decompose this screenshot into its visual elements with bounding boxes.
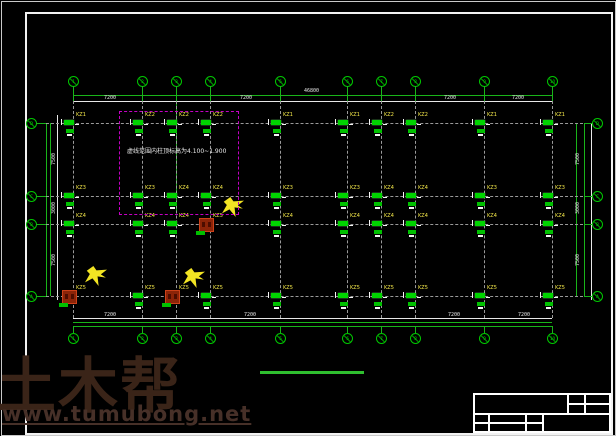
column-tick — [540, 220, 541, 226]
axis-bubble-stem — [381, 86, 382, 101]
column-tick — [349, 197, 353, 198]
column-tick — [540, 292, 541, 298]
column-tick — [335, 292, 336, 298]
column-tick — [61, 220, 62, 226]
column-rebar-mark — [135, 302, 143, 306]
column-label: KZ5 — [179, 286, 189, 291]
note-region-box — [119, 111, 239, 215]
column-rebar-mark — [273, 302, 281, 306]
column-rebar-mark — [477, 302, 485, 306]
column-tick — [130, 220, 131, 226]
dimension-text: 3000 — [576, 202, 581, 214]
watermark-url: www.tumubong.net — [2, 402, 251, 426]
column-sub-label-mark — [375, 307, 380, 309]
column-label: KZ3 — [76, 186, 86, 191]
axis-bubble-stem — [415, 326, 416, 333]
column-rebar-mark — [340, 302, 348, 306]
column-sub-label-mark — [274, 307, 279, 309]
column-label: KZ4 — [555, 214, 565, 219]
grid-line-vertical — [347, 101, 348, 318]
column-tick — [282, 197, 286, 198]
column-label: KZ3 — [487, 186, 497, 191]
axis-bubble-stem — [584, 196, 593, 197]
column-label: KZ4 — [283, 214, 293, 219]
column-sub-label-mark — [341, 134, 346, 136]
column-rebar-mark — [169, 230, 177, 234]
column-sub-label-mark — [546, 235, 551, 237]
column-tick — [268, 192, 269, 198]
column-marker — [271, 293, 281, 298]
column-tick — [369, 119, 370, 125]
column-sub-label-mark — [546, 134, 551, 136]
column-tick — [554, 225, 558, 226]
axis-bubble-stem — [142, 86, 143, 101]
axis-bubble-stem — [176, 86, 177, 101]
column-sub-label-mark — [409, 207, 414, 209]
axis-bubble-stem — [552, 326, 553, 333]
column-marker — [133, 221, 143, 226]
grid-line-horizontal — [36, 296, 593, 297]
column-tick — [417, 197, 421, 198]
bottom-dimension-line — [73, 318, 552, 319]
axis-bubble-stem — [176, 326, 177, 333]
column-rebar-mark — [196, 231, 205, 235]
column-marker — [64, 120, 74, 125]
axis-bubble: 10 — [547, 333, 558, 344]
column-tick — [349, 124, 353, 125]
column-tick — [554, 197, 558, 198]
column-sub-label-mark — [478, 235, 483, 237]
column-rebar-mark — [545, 129, 553, 133]
column-tick — [417, 124, 421, 125]
grid-line-vertical — [415, 101, 416, 318]
column-rebar-mark — [545, 202, 553, 206]
column-tick — [198, 292, 199, 298]
column-tick — [61, 119, 62, 125]
column-marker-red — [199, 218, 214, 232]
axis-bubble-stem — [347, 86, 348, 101]
column-marker — [338, 221, 348, 226]
axis-bubble-stem — [210, 326, 211, 333]
column-marker — [475, 120, 485, 125]
column-rebar-mark — [273, 129, 281, 133]
column-rebar-mark — [408, 302, 416, 306]
axis-bubble-stem — [484, 326, 485, 333]
note-text: 虚线范围内柱顶标高为4.100~1.900 — [127, 148, 226, 155]
column-rebar-mark — [545, 302, 553, 306]
column-marker — [543, 120, 553, 125]
column-rebar-mark — [408, 202, 416, 206]
column-label: KZ1 — [350, 113, 360, 118]
column-sub-label-mark — [274, 207, 279, 209]
column-marker-red — [62, 290, 77, 304]
column-sub-label-mark — [341, 207, 346, 209]
column-tick — [282, 124, 286, 125]
column-rebar-mark — [408, 129, 416, 133]
column-tick — [282, 225, 286, 226]
column-label: KZ1 — [76, 113, 86, 118]
column-label: KZ2 — [418, 113, 428, 118]
dimension-text: 3000 — [52, 202, 57, 214]
left-dimension-line — [57, 115, 58, 300]
title-block-divider — [567, 403, 609, 405]
column-sub-label-mark — [136, 307, 141, 309]
column-sub-label-mark — [375, 207, 380, 209]
column-label: KZ3 — [350, 186, 360, 191]
column-tick — [383, 197, 387, 198]
column-marker — [406, 293, 416, 298]
column-marker — [372, 221, 382, 226]
column-sub-label-mark — [341, 235, 346, 237]
axis-bubble-stem — [347, 326, 348, 333]
column-rebar-mark — [273, 230, 281, 234]
column-label: KZ5 — [555, 286, 565, 291]
column-sub-label-mark — [409, 235, 414, 237]
column-rebar-mark — [66, 230, 74, 234]
axis-bubble: 4 — [205, 333, 216, 344]
column-rebar-mark — [408, 230, 416, 234]
column-tick — [554, 124, 558, 125]
column-marker — [133, 293, 143, 298]
dimension-text: 7200 — [518, 313, 530, 318]
column-label: KZ5 — [487, 286, 497, 291]
top-dimension-line — [73, 101, 552, 102]
column-rebar-mark — [374, 230, 382, 234]
column-tick — [75, 197, 79, 198]
axis-bubble-stem — [484, 86, 485, 101]
column-marker — [475, 193, 485, 198]
grid-line-vertical — [73, 101, 74, 318]
column-marker — [271, 193, 281, 198]
column-tick — [369, 192, 370, 198]
column-tick — [268, 220, 269, 226]
column-marker — [372, 293, 382, 298]
column-tick — [472, 220, 473, 226]
column-label: KZ5 — [145, 286, 155, 291]
column-label: KZ3 — [283, 186, 293, 191]
column-rebar-mark — [162, 303, 171, 307]
column-label: KZ5 — [350, 286, 360, 291]
column-label: KZ4 — [384, 214, 394, 219]
axis-bubble-stem — [210, 86, 211, 101]
column-rebar-mark — [477, 230, 485, 234]
column-marker — [543, 193, 553, 198]
column-tick — [383, 225, 387, 226]
column-tick — [335, 119, 336, 125]
column-marker — [338, 120, 348, 125]
dimension-text: 7500 — [576, 153, 581, 165]
column-sub-label-mark — [204, 307, 209, 309]
column-rebar-mark — [273, 202, 281, 206]
dimension-text: 7200 — [448, 313, 460, 318]
axis-bubble-stem — [280, 86, 281, 101]
column-marker — [64, 193, 74, 198]
column-label: KZ1 — [555, 113, 565, 118]
column-sub-label-mark — [170, 235, 175, 237]
axis-bubble-stem — [584, 123, 593, 124]
axis-bubble: 7 — [376, 333, 387, 344]
column-sub-label-mark — [274, 134, 279, 136]
column-sub-label-mark — [409, 307, 414, 309]
axis-bubble: 9 — [479, 333, 490, 344]
column-marker — [271, 221, 281, 226]
dimension-text: 7200 — [104, 96, 116, 101]
column-rebar-mark — [135, 230, 143, 234]
axis-bubble-stem — [73, 86, 74, 101]
column-rebar-mark — [66, 129, 74, 133]
column-label: KZ5 — [283, 286, 293, 291]
axis-bubble: 6 — [342, 333, 353, 344]
column-tick — [383, 297, 387, 298]
bottom-dimension-line — [73, 322, 552, 323]
dimension-text: 7500 — [52, 153, 57, 165]
column-marker — [201, 293, 211, 298]
column-sub-label-mark — [136, 235, 141, 237]
column-label: KZ1 — [283, 113, 293, 118]
dimension-text: 7200 — [240, 96, 252, 101]
column-tick — [554, 297, 558, 298]
axis-bubble-stem — [36, 224, 46, 225]
column-tick — [164, 220, 165, 226]
column-marker — [64, 221, 74, 226]
column-marker — [475, 293, 485, 298]
column-rebar-mark — [340, 230, 348, 234]
cad-drawing-canvas: 1122334455667788991010DDCCBBAAKZ1KZ2KZ2K… — [0, 0, 616, 436]
column-marker — [167, 221, 177, 226]
right-dimension-line — [584, 123, 585, 296]
left-dimension-line — [46, 123, 47, 296]
title-block — [473, 393, 611, 433]
column-tick — [61, 192, 62, 198]
column-rebar-mark — [545, 230, 553, 234]
bottom-dimension-line — [73, 326, 552, 327]
column-tick — [417, 225, 421, 226]
axis-bubble-stem — [73, 326, 74, 333]
column-marker — [406, 221, 416, 226]
column-rebar-mark — [340, 129, 348, 133]
column-rebar-mark — [374, 302, 382, 306]
column-rebar-mark — [340, 202, 348, 206]
axis-bubble-stem — [36, 123, 46, 124]
axis-bubble-stem — [36, 296, 46, 297]
column-label: KZ4 — [418, 186, 428, 191]
column-tick — [369, 292, 370, 298]
column-sub-label-mark — [67, 134, 72, 136]
column-label: KZ4 — [487, 214, 497, 219]
column-tick — [486, 197, 490, 198]
column-marker — [406, 193, 416, 198]
column-marker — [338, 293, 348, 298]
dimension-text: 7200 — [512, 96, 524, 101]
column-sub-label-mark — [67, 207, 72, 209]
title-block-divider — [475, 422, 543, 424]
column-rebar-mark — [477, 202, 485, 206]
axis-bubble-stem — [36, 196, 46, 197]
grid-line-vertical — [280, 101, 281, 318]
column-tick — [486, 297, 490, 298]
column-sub-label-mark — [409, 134, 414, 136]
grid-line-horizontal — [36, 224, 593, 225]
column-tick — [335, 192, 336, 198]
column-label: KZ5 — [76, 286, 86, 291]
axis-bubble: A — [592, 291, 603, 302]
column-rebar-mark — [59, 303, 68, 307]
column-tick — [268, 292, 269, 298]
column-marker — [406, 120, 416, 125]
column-label: KZ5 — [384, 286, 394, 291]
column-label: KZ4 — [76, 214, 86, 219]
column-label: KZ4 — [418, 214, 428, 219]
top-dimension-line — [73, 95, 552, 96]
column-tick — [212, 297, 216, 298]
column-tick — [349, 297, 353, 298]
column-sub-label-mark — [546, 307, 551, 309]
column-tick — [178, 225, 182, 226]
column-sub-label-mark — [478, 134, 483, 136]
column-sub-label-mark — [478, 307, 483, 309]
column-rebar-mark — [66, 202, 74, 206]
column-sub-label-mark — [375, 235, 380, 237]
column-tick — [282, 297, 286, 298]
column-tick — [417, 297, 421, 298]
axis-bubble: B — [592, 219, 603, 230]
column-tick — [349, 225, 353, 226]
axis-bubble: 5 — [275, 333, 286, 344]
column-marker — [338, 193, 348, 198]
column-rebar-mark — [374, 202, 382, 206]
column-tick — [486, 225, 490, 226]
grid-line-vertical — [484, 101, 485, 318]
column-tick — [472, 192, 473, 198]
column-tick — [540, 192, 541, 198]
column-label: KZ2 — [384, 113, 394, 118]
column-tick — [403, 119, 404, 125]
axis-bubble: 8 — [410, 333, 421, 344]
drawing-title-underline — [260, 371, 364, 374]
column-tick — [383, 124, 387, 125]
column-marker — [372, 193, 382, 198]
axis-bubble: C — [592, 191, 603, 202]
column-tick — [369, 220, 370, 226]
column-tick — [472, 292, 473, 298]
dimension-text: 7500 — [52, 254, 57, 266]
axis-bubble-stem — [552, 86, 553, 101]
dimension-text: 7200 — [244, 313, 256, 318]
axis-bubble-stem — [142, 326, 143, 333]
column-marker — [372, 120, 382, 125]
column-tick — [403, 292, 404, 298]
dimension-text: 7500 — [576, 254, 581, 266]
column-tick — [335, 220, 336, 226]
grid-line-vertical — [552, 101, 553, 318]
column-sub-label-mark — [375, 134, 380, 136]
column-label: KZ1 — [487, 113, 497, 118]
right-dimension-line — [591, 123, 592, 300]
axis-bubble-stem — [584, 224, 593, 225]
column-label: KZ5 — [213, 286, 223, 291]
column-rebar-mark — [477, 129, 485, 133]
column-tick — [130, 292, 131, 298]
axis-bubble-stem — [584, 296, 593, 297]
axis-bubble: D — [592, 118, 603, 129]
column-label: KZ3 — [555, 186, 565, 191]
column-tick — [403, 220, 404, 226]
axis-bubble-stem — [381, 326, 382, 333]
column-sub-label-mark — [341, 307, 346, 309]
dimension-text: 46800 — [304, 89, 319, 94]
column-tick — [472, 119, 473, 125]
column-label: KZ4 — [350, 214, 360, 219]
column-rebar-mark — [374, 129, 382, 133]
column-rebar-mark — [203, 302, 211, 306]
column-marker — [475, 221, 485, 226]
column-sub-label-mark — [478, 207, 483, 209]
dimension-text: 7200 — [104, 313, 116, 318]
column-tick — [75, 124, 79, 125]
grid-line-vertical — [381, 101, 382, 318]
column-marker-red — [165, 290, 180, 304]
column-sub-label-mark — [274, 235, 279, 237]
column-sub-label-mark — [67, 235, 72, 237]
axis-bubble-stem — [415, 86, 416, 101]
column-tick — [403, 192, 404, 198]
column-tick — [144, 225, 148, 226]
column-sub-label-mark — [546, 207, 551, 209]
dimension-text: 7200 — [444, 96, 456, 101]
column-label: KZ5 — [418, 286, 428, 291]
axis-bubble-stem — [280, 326, 281, 333]
column-tick — [268, 119, 269, 125]
column-tick — [486, 124, 490, 125]
column-tick — [144, 297, 148, 298]
column-label: KZ4 — [384, 186, 394, 191]
column-tick — [540, 119, 541, 125]
column-marker — [271, 120, 281, 125]
column-marker — [543, 293, 553, 298]
column-tick — [75, 225, 79, 226]
column-marker — [543, 221, 553, 226]
